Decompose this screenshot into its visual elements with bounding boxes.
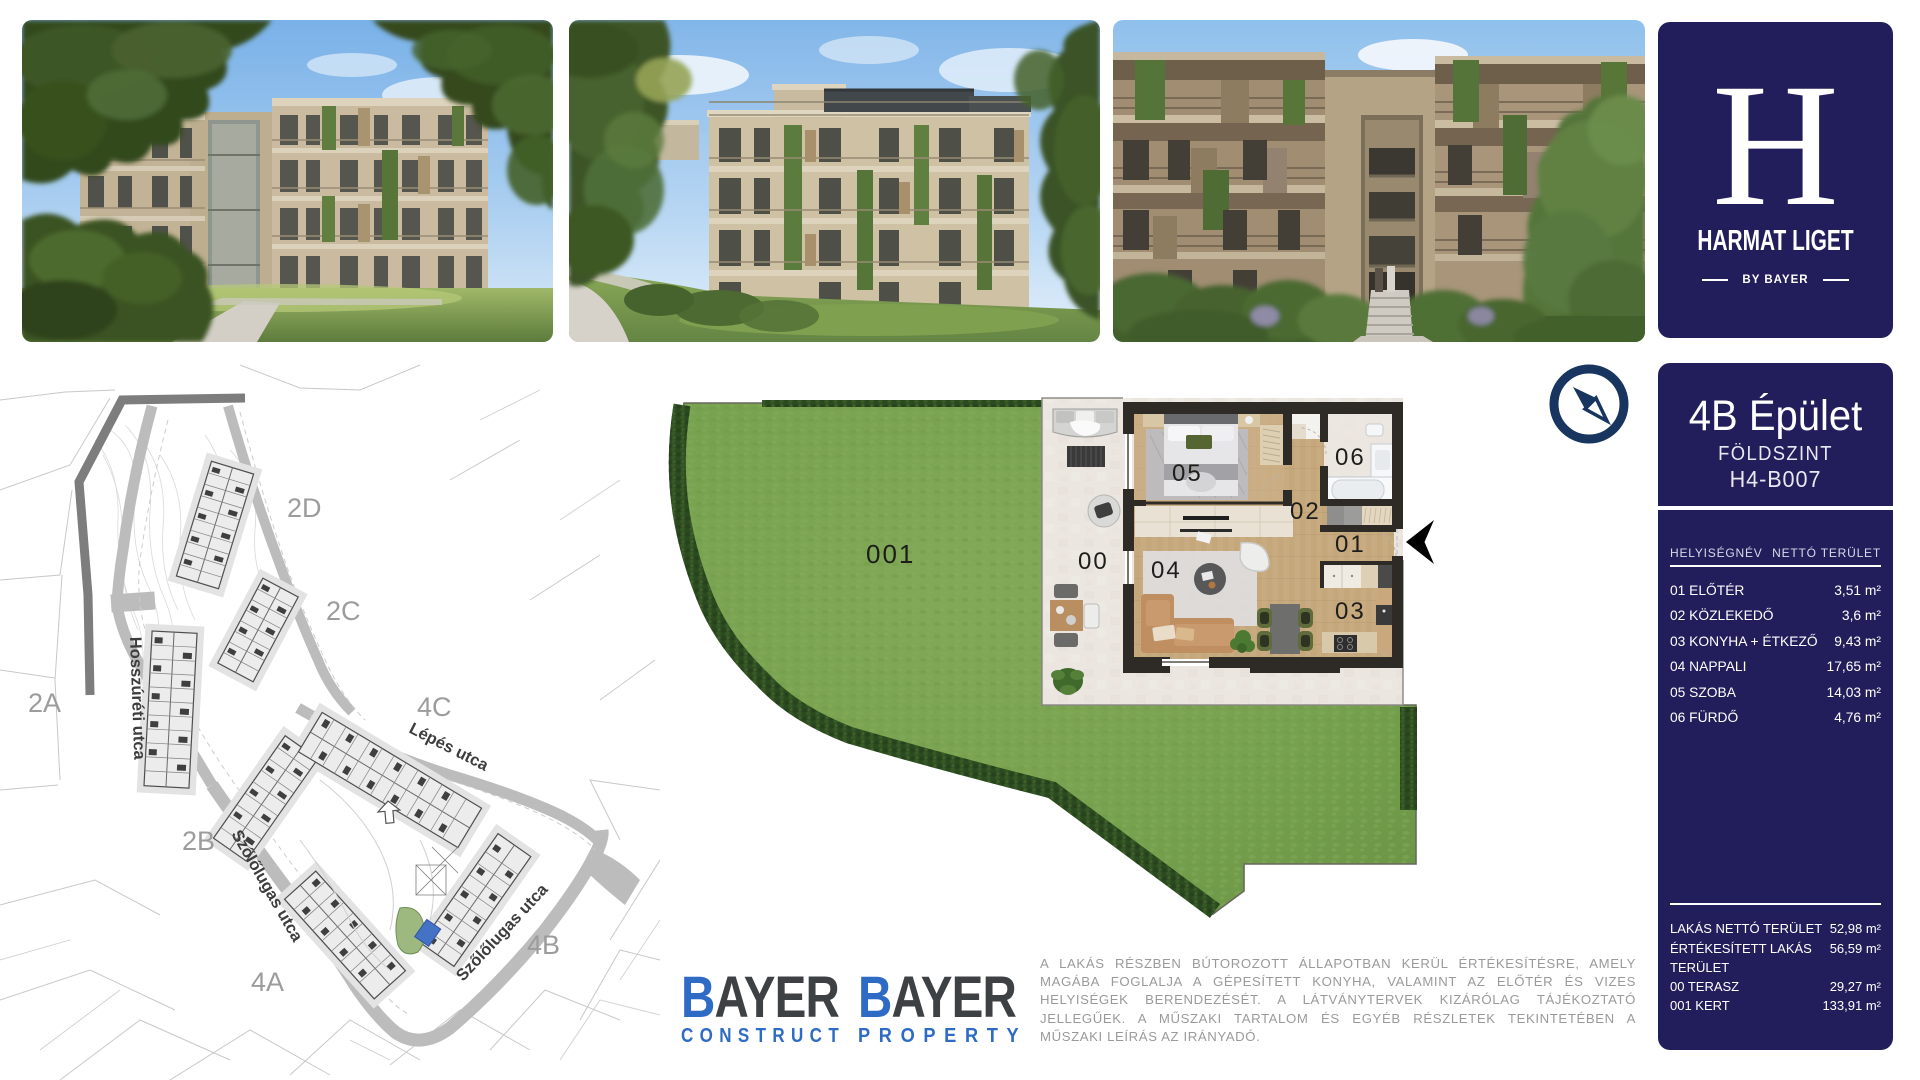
svg-text:04: 04 <box>1151 557 1182 584</box>
svg-text:2C: 2C <box>326 596 361 626</box>
svg-text:2D: 2D <box>287 493 322 523</box>
svg-text:001: 001 <box>866 539 915 569</box>
svg-text:4B: 4B <box>527 930 560 960</box>
svg-text:4C: 4C <box>417 692 452 722</box>
svg-text:03: 03 <box>1335 598 1366 625</box>
svg-text:2B: 2B <box>182 826 215 856</box>
svg-text:2A: 2A <box>28 688 61 718</box>
svg-text:06: 06 <box>1335 444 1366 471</box>
svg-text:05: 05 <box>1172 460 1203 487</box>
svg-text:01: 01 <box>1335 531 1366 558</box>
svg-text:02: 02 <box>1290 498 1321 525</box>
svg-text:00: 00 <box>1078 548 1109 575</box>
svg-text:4A: 4A <box>251 967 284 997</box>
